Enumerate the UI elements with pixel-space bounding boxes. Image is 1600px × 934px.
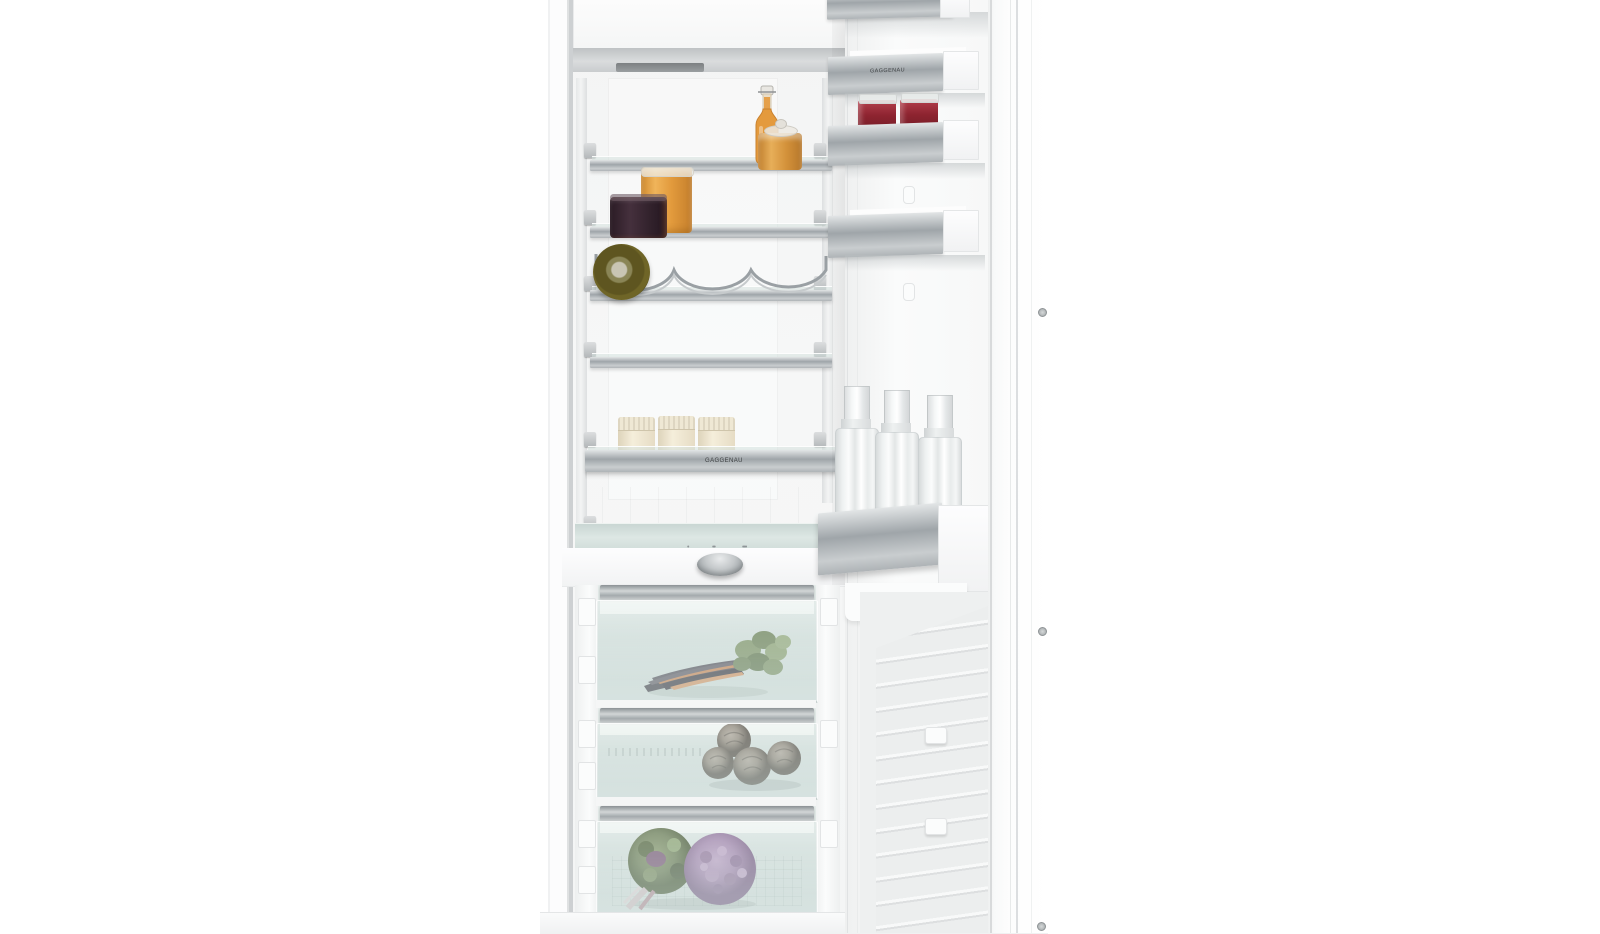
ceramic-jar-lid xyxy=(618,417,655,431)
top-compartment-band xyxy=(573,48,847,72)
jam-jar-lid xyxy=(901,93,939,103)
water-bottle xyxy=(834,386,878,528)
door-bin-endcap xyxy=(940,0,970,18)
drawer-bracket xyxy=(578,720,596,748)
hinge-screw xyxy=(1038,308,1047,317)
drawer-bracket xyxy=(820,598,838,626)
top-compartment-panel xyxy=(573,0,848,48)
hinge-screw xyxy=(1038,627,1047,636)
drawer-bracket xyxy=(578,820,596,848)
shelf-trim-5: GAGGENAU xyxy=(585,450,847,472)
bottle-cap xyxy=(884,390,910,426)
shelf-trim-4 xyxy=(590,357,832,368)
door-bin-endcap xyxy=(943,210,979,252)
berry-jam-jar xyxy=(610,197,667,238)
door-bin-endcap xyxy=(943,120,979,160)
door-edge-strip xyxy=(988,0,1048,933)
wine-bottle xyxy=(593,244,650,300)
cabinet-left-frame xyxy=(540,0,573,933)
drawer-separator xyxy=(596,700,816,708)
drawer-bracket xyxy=(578,656,596,684)
door-bottle-bin xyxy=(818,503,942,576)
door-bottle-bin-endcap xyxy=(938,505,992,592)
shelf-clip xyxy=(584,432,596,447)
humidity-icon-low: • xyxy=(687,544,688,551)
door-edge-line xyxy=(1031,0,1032,933)
top-compartment-handle xyxy=(616,63,704,72)
bottle-cap xyxy=(927,395,953,431)
ceramic-jar-lid xyxy=(658,416,695,430)
door-lower-grooves xyxy=(876,592,988,933)
berry-jar-rim xyxy=(610,194,667,201)
door-clip xyxy=(925,727,947,744)
door-clip xyxy=(925,818,947,835)
door-bin-endcap xyxy=(943,51,979,90)
amber-jar-knob xyxy=(775,119,787,129)
humidity-knob xyxy=(697,553,743,576)
drawer-bracket xyxy=(578,866,596,894)
orange-jar-rim xyxy=(641,167,694,177)
brand-logo-bin: GAGGENAU xyxy=(870,67,905,74)
humidity-icon-mid: •• xyxy=(712,544,715,551)
door-edge-line xyxy=(990,0,992,933)
drawer-glass-front xyxy=(596,821,818,915)
drawer-bracket xyxy=(820,820,838,848)
door-bin-top xyxy=(827,0,953,20)
drawer-bracket xyxy=(578,598,596,626)
door-stop xyxy=(903,283,915,301)
humidity-icon-high: ••• xyxy=(742,544,746,551)
product-photo: GAGGENAU • •• ••• xyxy=(0,0,1600,933)
drawer-separator xyxy=(596,797,816,806)
door-edge-line xyxy=(1010,0,1011,933)
drawer-glass-front xyxy=(596,600,818,703)
brand-logo-shelf: GAGGENAU xyxy=(705,458,743,464)
drawer-glass-front xyxy=(596,723,818,800)
ceramic-jar-lid xyxy=(698,417,735,431)
door-bin-logo: GAGGENAU xyxy=(828,53,943,95)
veg-compartment-glass xyxy=(575,523,820,551)
shelf-under-shadow xyxy=(585,472,847,480)
door-edge-line xyxy=(1016,0,1018,933)
door-bin-shadow xyxy=(845,163,985,179)
wall-seams xyxy=(575,487,825,523)
hinge-screw xyxy=(1037,922,1046,931)
drawer-bracket xyxy=(578,762,596,790)
door-bin-mid xyxy=(828,212,943,258)
drawer-bracket xyxy=(820,720,838,748)
drawer-rail xyxy=(600,585,814,600)
amber-jar xyxy=(758,133,802,170)
door-bin-shadow xyxy=(845,255,985,271)
bottle-cap xyxy=(844,386,870,422)
door-stop xyxy=(903,186,915,204)
shelf-clip xyxy=(814,432,826,447)
jam-jar-lid xyxy=(859,94,897,104)
door-bin-jam xyxy=(828,122,943,166)
